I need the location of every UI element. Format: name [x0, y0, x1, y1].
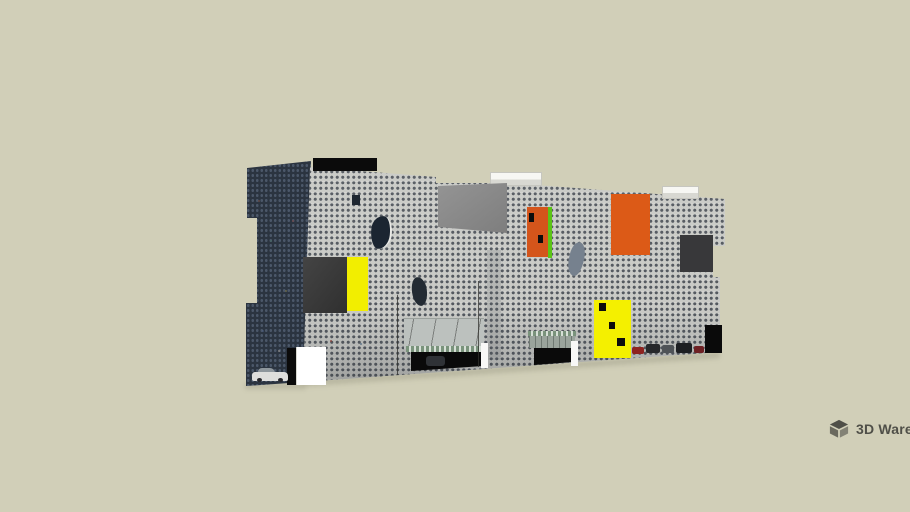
door-window-dot-1	[529, 213, 534, 222]
corner-shadow-right	[705, 325, 722, 353]
car-red	[632, 347, 644, 354]
roof-slab-black	[313, 158, 377, 171]
warehouse-cube-icon	[828, 419, 850, 439]
small-dark-window	[352, 195, 360, 205]
car-dark-1	[646, 344, 660, 353]
warehouse-watermark: 3D Warehouse	[828, 419, 910, 439]
facade-front-column-shading	[487, 250, 501, 360]
entrance-awning-1	[406, 346, 482, 352]
facade-front-street-speckles	[320, 335, 322, 337]
parked-vehicle-dark	[426, 356, 445, 366]
entrance-pillar-1	[481, 343, 488, 368]
panel-gray-upper	[438, 183, 507, 233]
street-cars-row	[630, 341, 706, 355]
entrance-canopy	[404, 318, 484, 349]
roof-penthouse-white-2	[662, 186, 699, 199]
car-white	[252, 368, 288, 382]
model-viewport[interactable]: 3D Warehouse	[0, 0, 910, 512]
facade-left-window-glints	[250, 180, 252, 182]
street-pole-1	[397, 295, 398, 375]
street-pole-2	[478, 281, 479, 367]
panel-yellow-strip	[347, 257, 368, 311]
panel-black-left	[303, 257, 347, 313]
panel-yellow-large	[594, 300, 631, 358]
car-gray	[662, 345, 674, 353]
yellow-panel-dot-2	[609, 322, 615, 329]
entrance-glass-front	[529, 336, 575, 348]
panel-orange-door	[527, 207, 548, 257]
panel-orange-large	[611, 194, 650, 255]
panel-green-edge	[548, 207, 552, 258]
warehouse-watermark-label: 3D Warehouse	[856, 421, 910, 437]
yellow-panel-dot-3	[617, 338, 625, 346]
car-dark-2	[676, 343, 692, 353]
car-maroon	[694, 346, 704, 353]
yellow-panel-dot-1	[599, 303, 606, 311]
panel-dark-right	[680, 235, 713, 272]
car-white-wheel-rear	[278, 378, 283, 382]
car-white-wheel-front	[257, 378, 262, 382]
building-model	[0, 0, 910, 512]
entry-block-white	[296, 347, 326, 385]
entrance-pillar-2	[571, 341, 578, 366]
door-window-dot-2	[538, 235, 543, 243]
